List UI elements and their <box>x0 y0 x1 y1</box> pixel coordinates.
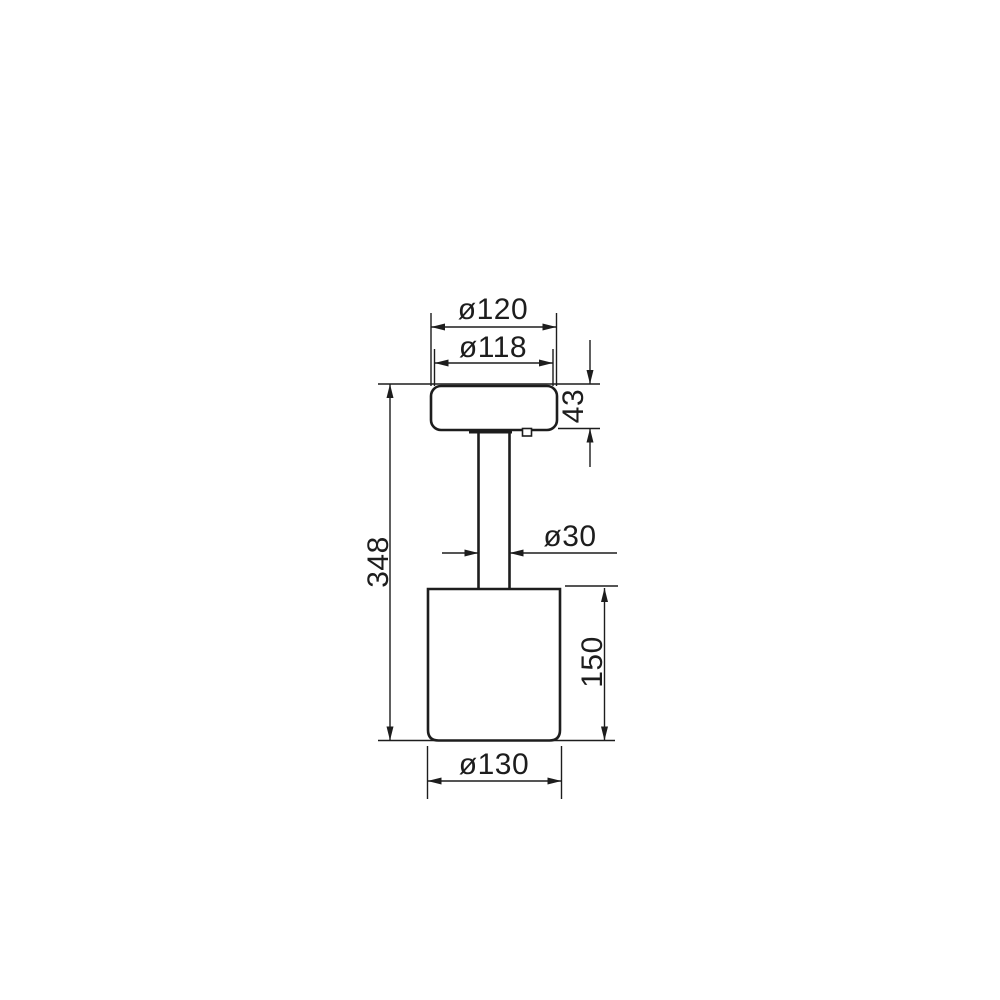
arrowhead-up-icon <box>601 588 608 602</box>
arrowhead-down-icon <box>587 370 594 384</box>
arrowhead-down-icon <box>387 727 394 741</box>
dim-label-head-outer-diameter: ø120 <box>458 293 528 326</box>
arrowhead-up-icon <box>387 384 394 398</box>
lamp-base-outline <box>428 589 560 741</box>
arrowhead-left-icon <box>428 778 442 785</box>
dim-total-height: 348 <box>362 384 395 741</box>
switch-nub-outline <box>523 429 532 437</box>
arrowhead-right-icon <box>548 778 562 785</box>
dim-label-stem-diameter: ø30 <box>543 520 596 553</box>
lamp-head-outline <box>431 386 557 430</box>
dim-head-height: 43 <box>557 340 600 467</box>
lamp-outline <box>428 386 560 741</box>
arrowhead-right-icon <box>465 550 479 557</box>
dim-label-base-diameter: ø130 <box>459 748 529 781</box>
dim-label-total-height: 348 <box>362 536 395 588</box>
arrowhead-right-icon <box>543 324 557 331</box>
drawing-canvas: ø120 ø118 43 348 <box>0 0 1000 1000</box>
dim-head-inner-diameter: ø118 <box>435 331 554 386</box>
lamp-dimension-drawing: ø120 ø118 43 348 <box>0 0 1000 1000</box>
dim-label-base-height: 150 <box>576 636 609 688</box>
arrowhead-right-icon <box>539 360 553 367</box>
arrowhead-up-icon <box>587 429 594 443</box>
arrowhead-down-icon <box>601 727 608 741</box>
dim-label-head-height: 43 <box>557 389 590 423</box>
arrowhead-left-icon <box>431 324 445 331</box>
dim-label-head-inner-diameter: ø118 <box>459 331 527 364</box>
dim-base-diameter: ø130 <box>428 746 562 799</box>
arrowhead-left-icon <box>510 550 524 557</box>
dim-stem-diameter: ø30 <box>442 520 617 557</box>
arrowhead-left-icon <box>435 360 449 367</box>
dim-base-height: 150 <box>565 586 618 741</box>
